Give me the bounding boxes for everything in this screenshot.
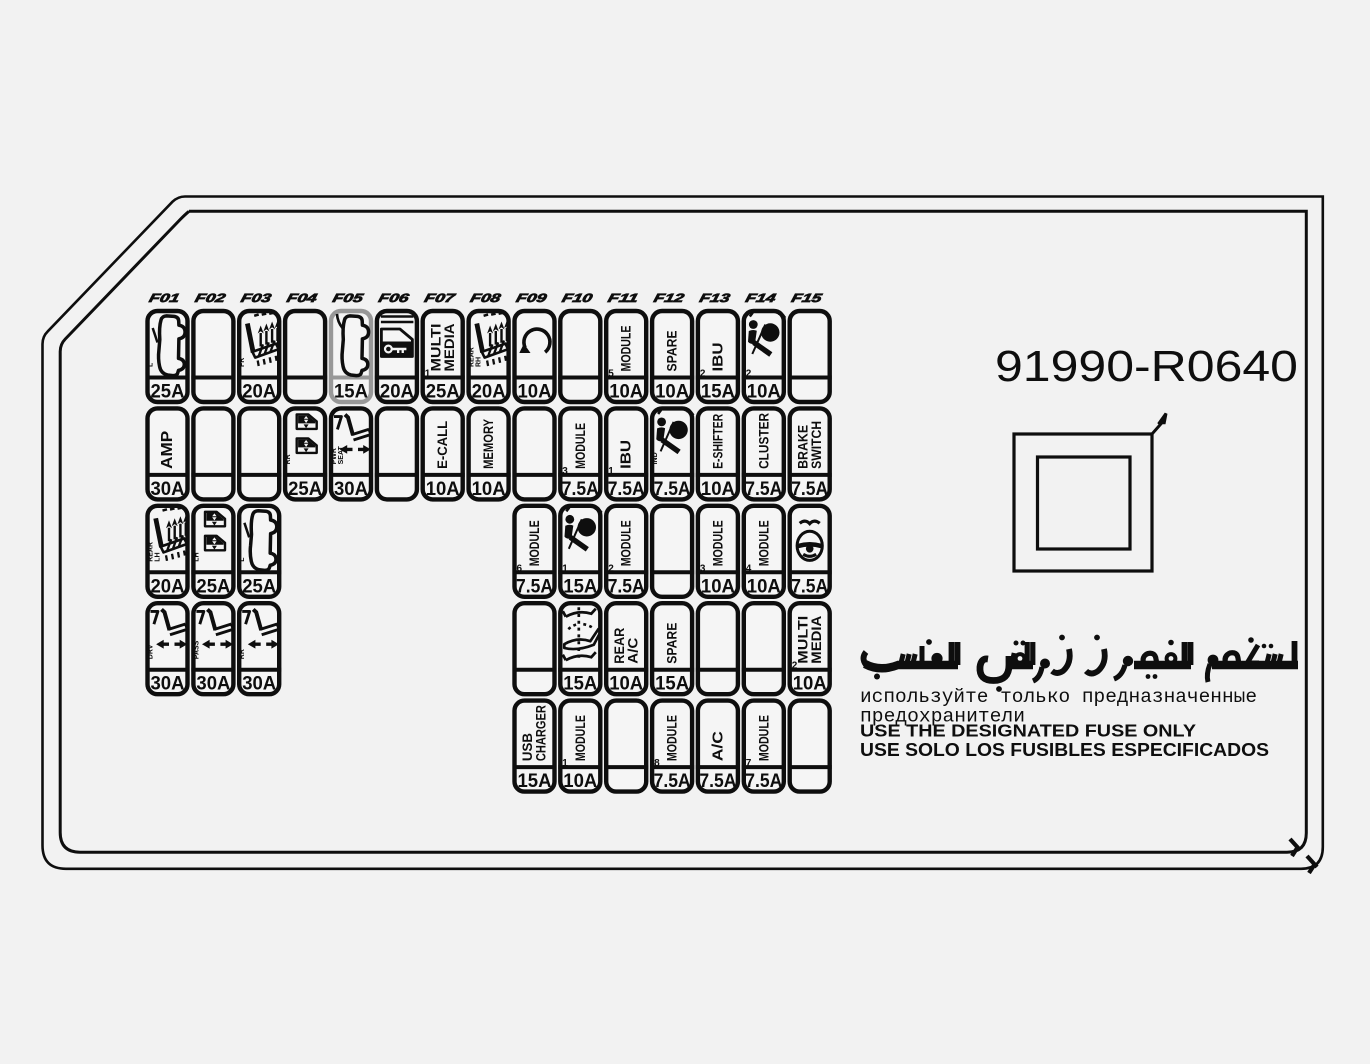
svg-text:91990-R0640: 91990-R0640 [995,342,1298,391]
svg-text:REAR: REAR [469,347,476,367]
svg-text:2: 2 [608,563,614,574]
svg-text:30A: 30A [151,478,185,500]
svg-text:LH: LH [193,552,200,561]
svg-text:USE THE DESIGNATED FUSE ONLY: USE THE DESIGNATED FUSE ONLY [860,721,1196,741]
svg-text:7.5A: 7.5A [745,770,782,792]
svg-text:10A: 10A [518,381,552,403]
svg-text:7: 7 [746,758,752,769]
svg-text:F07: F07 [423,291,458,305]
svg-text:10A: 10A [609,381,643,403]
svg-text:8: 8 [654,758,660,769]
svg-text:F13: F13 [698,291,732,305]
svg-text:IBU: IBU [618,440,635,469]
svg-text:3: 3 [562,466,568,477]
svg-text:F04: F04 [285,291,319,305]
svg-text:SPARE: SPARE [665,623,680,664]
svg-text:MODULE: MODULE [710,520,725,566]
svg-text:RR: RR [239,649,246,659]
svg-text:7.5A: 7.5A [608,575,645,597]
svg-text:25A: 25A [242,575,276,597]
svg-text:10A: 10A [609,673,643,695]
svg-text:L: L [148,362,155,367]
svg-text:MODULE: MODULE [619,520,634,566]
svg-text:DRV: DRV [148,644,155,659]
svg-text:LH: LH [155,552,162,561]
svg-text:7.5A: 7.5A [791,478,828,500]
svg-text:20A: 20A [242,381,276,403]
svg-text:15A: 15A [563,673,597,695]
svg-text:F11: F11 [606,291,640,305]
svg-text:RH: RH [476,357,483,367]
svg-text:F05: F05 [331,291,365,305]
svg-text:SWITCH: SWITCH [809,421,824,469]
svg-text:7.5A: 7.5A [516,575,553,597]
svg-text:1: 1 [562,563,568,574]
svg-text:1: 1 [562,758,568,769]
svg-text:7.5A: 7.5A [699,770,736,792]
svg-text:IND: IND [652,452,659,464]
svg-text:FR: FR [239,358,246,367]
svg-text:10A: 10A [655,381,689,403]
svg-text:25A: 25A [196,575,230,597]
svg-text:F14: F14 [744,291,778,305]
svg-text:PASS: PASS [193,640,200,659]
svg-text:1: 1 [608,466,614,477]
svg-text:10A: 10A [701,478,735,500]
svg-text:25A: 25A [151,381,185,403]
svg-text:10A: 10A [793,673,827,695]
svg-text:F12: F12 [652,291,686,305]
svg-text:MODULE: MODULE [756,520,771,566]
svg-text:15A: 15A [518,770,552,792]
svg-text:F10: F10 [560,291,594,305]
svg-text:10A: 10A [426,478,460,500]
svg-text:7.5A: 7.5A [654,770,691,792]
svg-text:L: L [239,557,246,562]
svg-text:2: 2 [700,369,706,380]
svg-text:25A: 25A [288,478,322,500]
svg-text:30A: 30A [242,673,276,695]
svg-text:MODULE: MODULE [573,423,588,469]
svg-text:10A: 10A [472,478,506,500]
svg-text:15A: 15A [334,381,368,403]
svg-text:MEDIA: MEDIA [442,323,457,371]
svg-text:20A: 20A [151,575,185,597]
svg-text:CHARGER: CHARGER [534,705,549,761]
svg-text:10A: 10A [701,575,735,597]
svg-text:MODULE: MODULE [665,715,680,761]
svg-text:AMP: AMP [159,431,176,469]
svg-text:PWR: PWR [331,448,338,464]
svg-text:E-CALL: E-CALL [435,421,450,469]
svg-text:4: 4 [746,563,752,574]
svg-text:6: 6 [517,563,523,574]
svg-text:F01: F01 [148,291,182,305]
svg-text:SEAT: SEAT [338,446,345,465]
svg-text:5: 5 [608,369,614,380]
svg-text:20A: 20A [472,381,506,403]
svg-text:MODULE: MODULE [619,325,634,371]
svg-text:7.5A: 7.5A [608,478,645,500]
svg-text:A/C: A/C [710,730,726,761]
svg-text:7.5A: 7.5A [791,575,828,597]
svg-text:25A: 25A [426,381,460,403]
svg-text:MEMORY: MEMORY [481,419,496,469]
svg-text:7.5A: 7.5A [654,478,691,500]
svg-text:F09: F09 [515,291,549,305]
svg-text:A/C: A/C [626,637,641,663]
svg-text:30A: 30A [151,673,185,695]
svg-text:MODULE: MODULE [573,715,588,761]
svg-text:IBU: IBU [709,343,726,372]
svg-text:USE SOLO LOS FUSIBLES ESPECIFI: USE SOLO LOS FUSIBLES ESPECIFICADOS [860,739,1269,760]
svg-text:CLUSTER: CLUSTER [756,413,771,469]
svg-text:MODULE: MODULE [527,520,542,566]
svg-text:RR: RR [285,454,292,464]
svg-text:MODULE: MODULE [756,715,771,761]
svg-text:REAR: REAR [148,542,155,562]
svg-text:10A: 10A [747,381,781,403]
svg-text:SPARE: SPARE [665,330,680,371]
svg-text:15A: 15A [655,673,689,695]
svg-text:10A: 10A [747,575,781,597]
svg-text:20A: 20A [380,381,414,403]
svg-text:F06: F06 [377,291,411,305]
svg-text:2: 2 [746,369,752,380]
svg-text:F03: F03 [239,291,273,305]
svg-text:3: 3 [700,563,706,574]
svg-text:1: 1 [425,369,431,380]
svg-text:F02: F02 [194,291,228,305]
svg-text:10A: 10A [563,770,597,792]
svg-text:MEDIA: MEDIA [809,615,824,663]
svg-text:F15: F15 [790,291,824,305]
svg-text:7.5A: 7.5A [745,478,782,500]
svg-text:30A: 30A [334,478,368,500]
svg-text:15A: 15A [563,575,597,597]
svg-text:7.5A: 7.5A [562,478,599,500]
svg-text:F08: F08 [469,291,503,305]
svg-text:E-SHIFTER: E-SHIFTER [710,414,725,469]
svg-text:2: 2 [792,661,798,672]
svg-text:15A: 15A [701,381,735,403]
svg-text:30A: 30A [196,673,230,695]
